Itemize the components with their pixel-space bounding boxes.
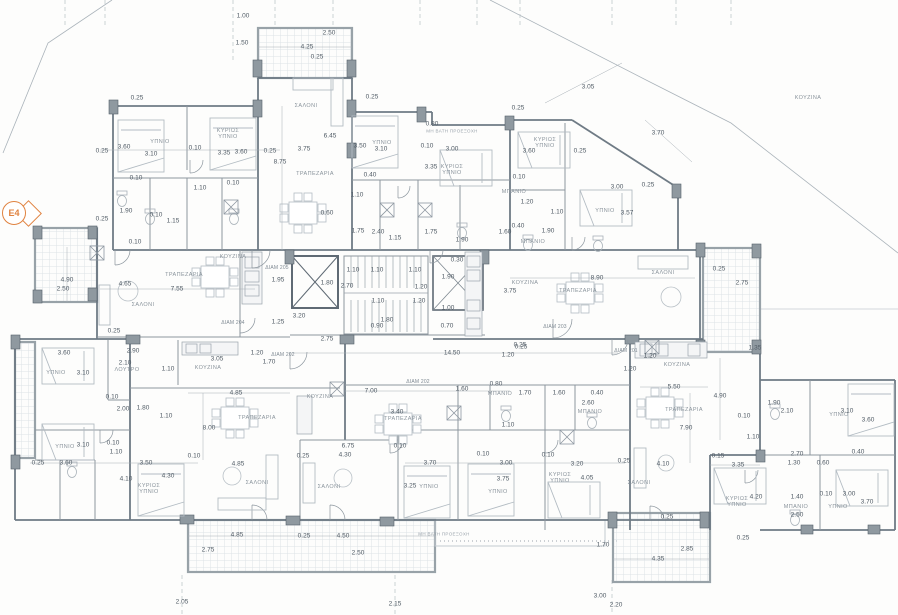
floorplan-linework — [0, 0, 898, 615]
elevator-core — [292, 256, 483, 334]
site-boundary-lines — [3, 0, 898, 615]
section-marker-e4: E4 — [2, 198, 44, 232]
stair-treads — [344, 256, 428, 332]
section-marker-label: E4 — [2, 201, 26, 225]
coffee-table-symbols — [118, 281, 681, 487]
dimension-lines — [30, 47, 760, 559]
floor-plan-canvas: ΣΑΛΟΝΙΤΡΑΠΕΖΑΡΙΑΥΠΝΙΟΚΥΡΙΩΣ ΥΠΝΙΟΥΠΝΙΟΚΥ… — [0, 0, 898, 615]
